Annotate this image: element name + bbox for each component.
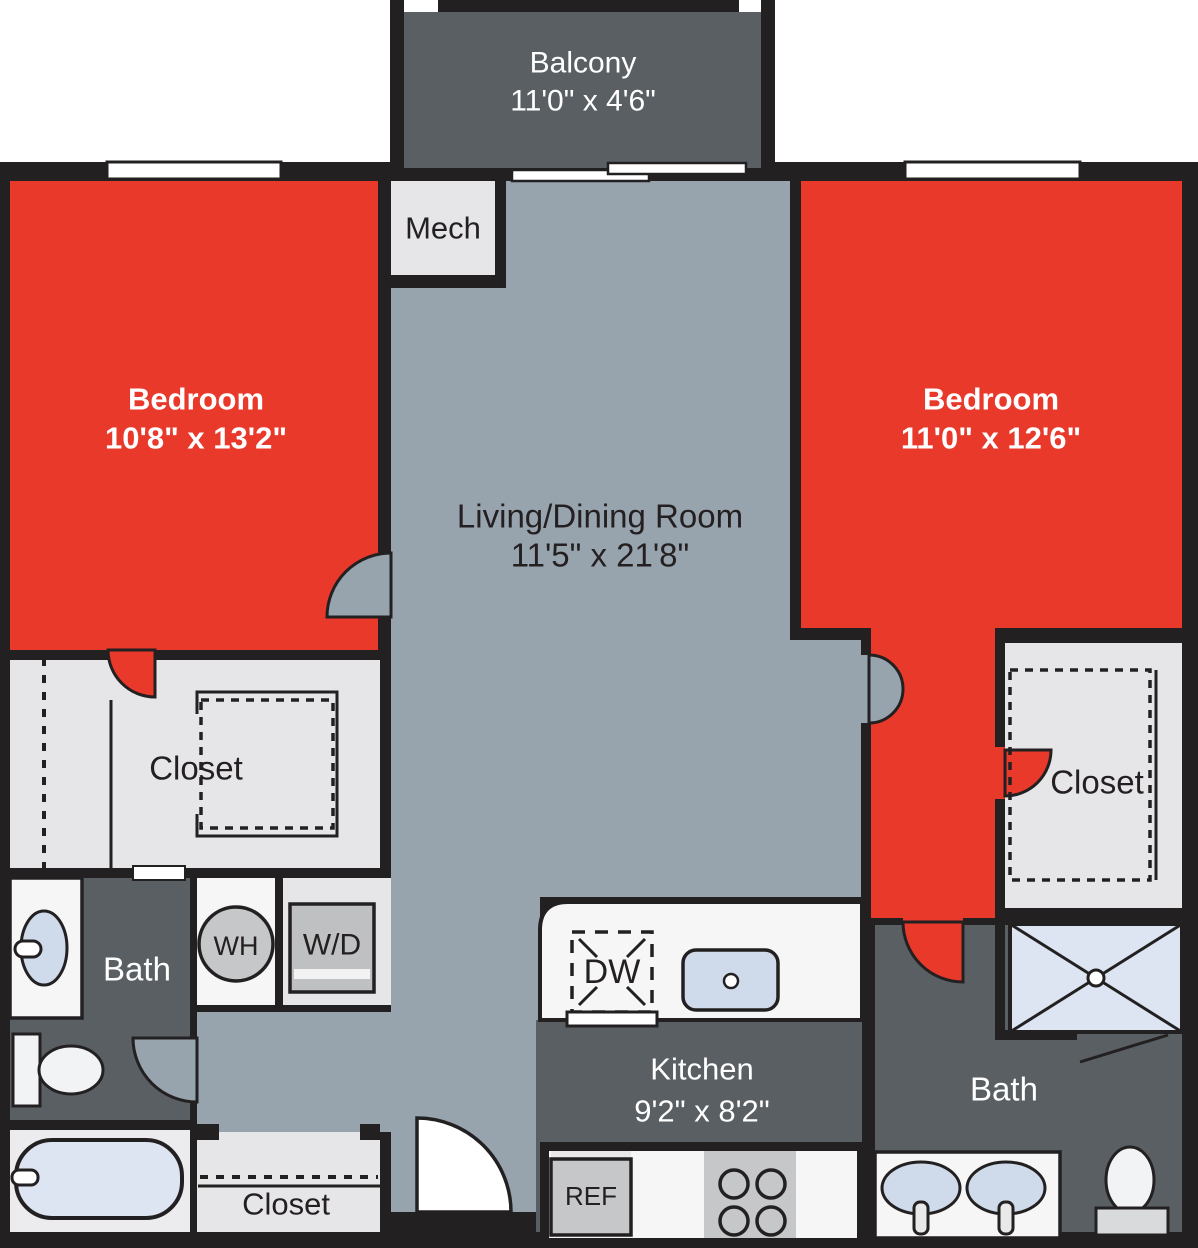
shower-wall-left: [995, 915, 1005, 1040]
wall-stub-right: [360, 1124, 380, 1140]
toilet-tank: [13, 1034, 40, 1106]
living-lower: [391, 640, 861, 897]
rail-notch-right: [739, 0, 761, 12]
living-dims: 11'5" x 21'8": [511, 537, 690, 574]
refrigerator-label: REF: [565, 1181, 617, 1211]
window-bedroom-right: [905, 162, 1080, 179]
closet-left-label: Closet: [149, 750, 243, 787]
bedroom-left-label: Bedroom: [128, 382, 264, 417]
closet-right-label: Closet: [1050, 764, 1144, 801]
toilet-bowl: [39, 1046, 103, 1094]
water-heater-label: WH: [214, 931, 259, 961]
living-mid: [391, 288, 790, 640]
door-closet-to-bath: [133, 866, 185, 880]
faucet: [914, 1202, 928, 1234]
wall-stub-left: [197, 1124, 219, 1140]
floor-plan-canvas: Balcony 11'0" x 4'6" Bedroom 10'8" x 13'…: [0, 0, 1198, 1248]
washer-dryer-label: W/D: [303, 929, 361, 962]
faucet: [999, 1202, 1013, 1234]
bath-right-label: Bath: [970, 1071, 1038, 1108]
sink-drain: [724, 974, 738, 988]
shower-wall-bottom: [995, 1030, 1077, 1040]
toilet-tank: [1096, 1208, 1168, 1235]
kitchen-label: Kitchen: [650, 1052, 753, 1087]
balcony-dims: 11'0" x 4'6": [510, 85, 656, 118]
dw-front: [567, 1012, 657, 1026]
dishwasher-label: DW: [584, 953, 641, 991]
tub-faucet: [12, 1170, 38, 1185]
living-top: [506, 181, 790, 288]
hall-west: [197, 1012, 391, 1132]
entry-closet-label: Closet: [242, 1187, 330, 1222]
rail-notch-left: [404, 0, 438, 12]
wd-slot: [294, 969, 370, 979]
sliding-panel-right: [608, 163, 746, 174]
balcony-label: Balcony: [530, 47, 637, 80]
bedroom-right-label: Bedroom: [923, 382, 1059, 417]
faucet: [15, 941, 41, 957]
bath-left-label: Bath: [103, 951, 171, 988]
bedroom-right-dims: 11'0" x 12'6": [901, 421, 1081, 456]
bedroom-left-dims: 10'8" x 13'2": [105, 421, 287, 456]
toilet-bowl: [1106, 1147, 1154, 1213]
living-label: Living/Dining Room: [457, 498, 743, 535]
floor-plan: Balcony 11'0" x 4'6" Bedroom 10'8" x 13'…: [0, 0, 1198, 1248]
bathtub: [16, 1140, 182, 1218]
shower-drain: [1088, 970, 1104, 986]
window-bedroom-left: [107, 162, 281, 179]
mech-label: Mech: [405, 211, 481, 246]
kitchen-dims: 9'2" x 8'2": [634, 1094, 770, 1129]
